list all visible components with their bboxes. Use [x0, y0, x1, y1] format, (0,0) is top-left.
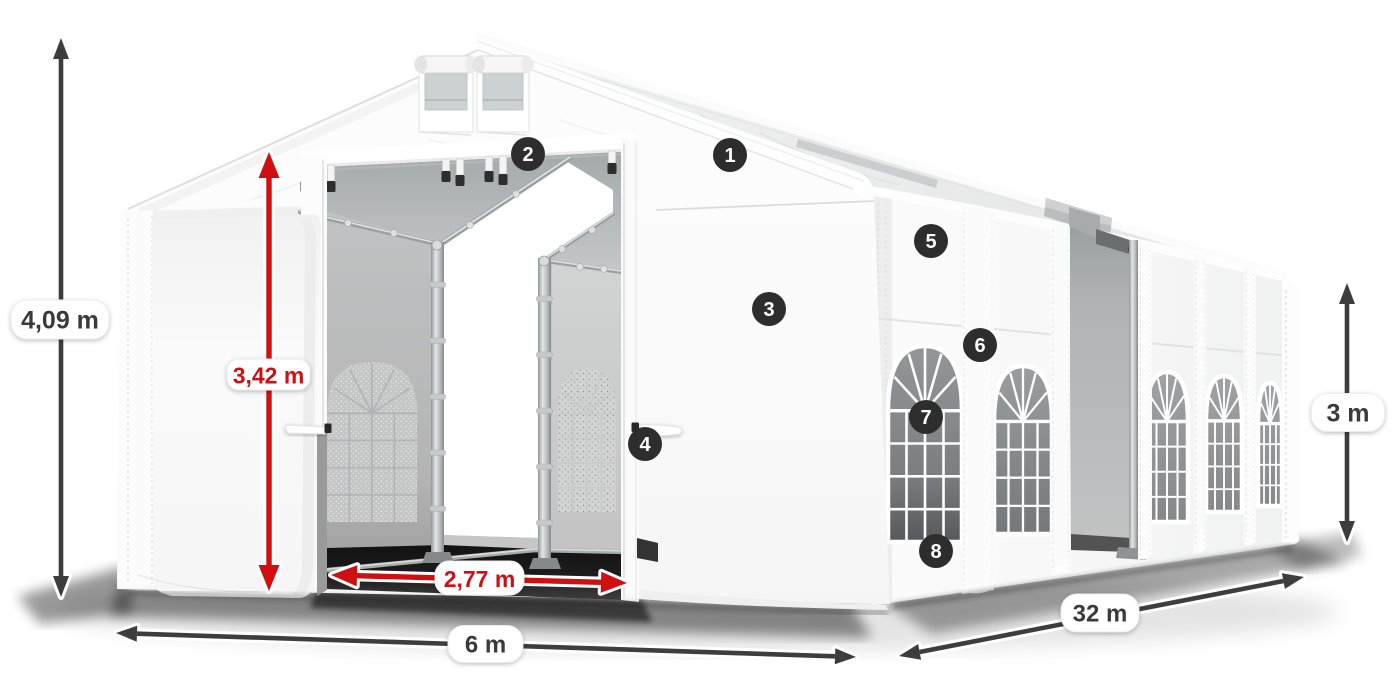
svg-text:3: 3 — [763, 299, 774, 321]
svg-text:4,09 m: 4,09 m — [21, 307, 99, 335]
svg-text:2,77 m: 2,77 m — [444, 566, 516, 592]
svg-text:3,42 m: 3,42 m — [233, 363, 305, 389]
svg-text:5: 5 — [925, 231, 936, 253]
svg-text:4: 4 — [639, 434, 651, 456]
svg-text:6 m: 6 m — [465, 632, 506, 659]
svg-text:32 m: 32 m — [1073, 601, 1128, 628]
svg-text:2: 2 — [522, 144, 533, 166]
svg-text:7: 7 — [920, 407, 931, 429]
svg-text:1: 1 — [724, 145, 735, 167]
svg-text:8: 8 — [930, 541, 941, 563]
svg-text:3 m: 3 m — [1326, 400, 1369, 428]
svg-text:6: 6 — [974, 335, 985, 357]
